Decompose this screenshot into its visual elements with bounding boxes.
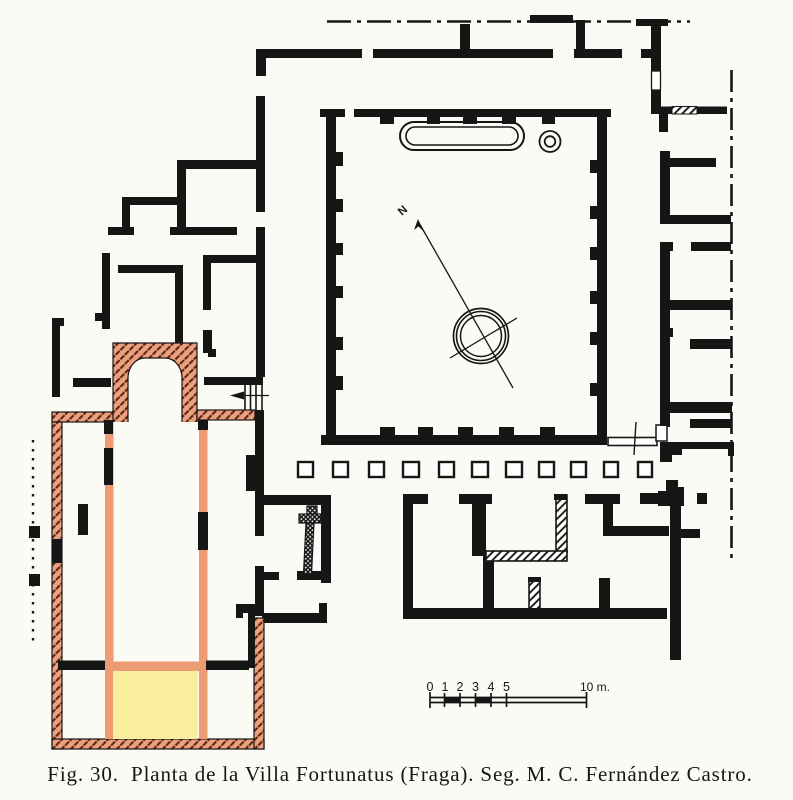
svg-text:5: 5: [503, 680, 510, 694]
svg-text:4: 4: [488, 680, 495, 694]
svg-text:10 m.: 10 m.: [580, 680, 610, 694]
svg-text:2: 2: [457, 680, 464, 694]
svg-text:0: 0: [427, 680, 434, 694]
svg-text:1: 1: [442, 680, 449, 694]
svg-text:3: 3: [472, 680, 479, 694]
svg-text:Fig. 30. Planta de la Villa F: Fig. 30. Planta de la Villa Fortunatus (…: [47, 762, 752, 786]
